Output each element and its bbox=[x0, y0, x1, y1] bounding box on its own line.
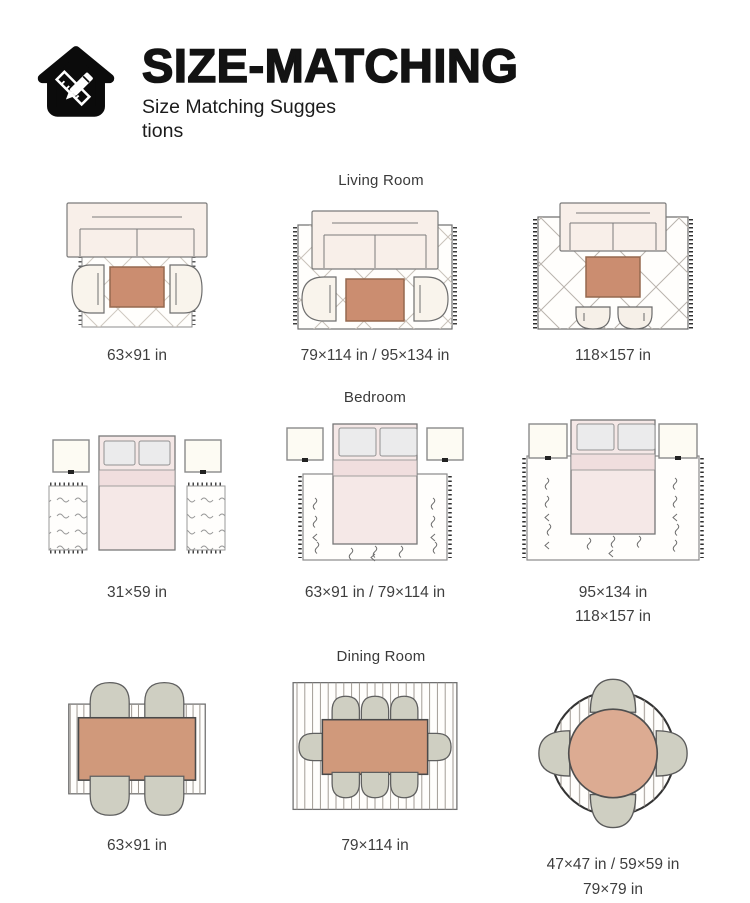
size-label-line1: 63×91 in / 79×114 in bbox=[305, 584, 445, 601]
bedroom-large-illustration bbox=[510, 412, 716, 572]
size-label: 47×47 in / 59×59 in 79×79 in bbox=[547, 853, 680, 903]
page-subtitle: Size Matching Sugges tions bbox=[142, 95, 472, 144]
size-label-line1: 79×114 in bbox=[341, 837, 408, 854]
size-label: 31×59 in bbox=[107, 581, 167, 606]
size-label-line1: 63×91 in bbox=[107, 837, 167, 854]
house-pencil-ruler-icon bbox=[34, 42, 118, 120]
subtitle-line1: Size Matching Sugges bbox=[142, 96, 336, 118]
bedroom-runners-figure: 31×59 in bbox=[26, 412, 248, 631]
living-room-small-illustration bbox=[39, 195, 235, 335]
size-label: 63×91 in / 79×114 in bbox=[305, 581, 445, 606]
living-room-row: 63×91 in bbox=[0, 195, 750, 369]
dining-round-illustration bbox=[510, 669, 716, 844]
dining-round-figure: 47×47 in / 59×59 in 79×79 in bbox=[502, 669, 724, 903]
dining-4-seats-illustration bbox=[34, 669, 240, 825]
section-title-dining-room: Dining Room bbox=[12, 648, 750, 665]
header: SIZE-MATCHING Size Matching Sugges tions bbox=[0, 0, 750, 144]
dining-room-row: 63×91 in bbox=[0, 669, 750, 903]
size-label: 118×157 in bbox=[575, 344, 651, 369]
size-label: 79×114 in bbox=[341, 834, 408, 859]
size-label: 63×91 in bbox=[107, 834, 167, 859]
living-room-large-illustration bbox=[515, 195, 711, 335]
bedroom-medium-figure: 63×91 in / 79×114 in bbox=[264, 412, 486, 631]
size-label-line1: 79×114 in / 95×134 in bbox=[301, 347, 450, 364]
size-label-line1: 118×157 in bbox=[575, 347, 651, 364]
size-label-line1: 47×47 in / 59×59 in bbox=[547, 856, 680, 873]
size-label-line1: 63×91 in bbox=[107, 347, 167, 364]
bedroom-large-figure: 95×134 in 118×157 in bbox=[502, 412, 724, 631]
size-label: 79×114 in / 95×134 in bbox=[301, 344, 450, 369]
infographic-page: SIZE-MATCHING Size Matching Sugges tions… bbox=[0, 0, 750, 873]
bedroom-runners-illustration bbox=[34, 412, 240, 572]
title-block: SIZE-MATCHING Size Matching Sugges tions bbox=[142, 42, 518, 144]
living-room-large-figure: 118×157 in bbox=[502, 195, 724, 369]
size-label-line2: 118×157 in bbox=[575, 605, 651, 630]
subtitle-line2: tions bbox=[142, 120, 183, 142]
size-label-line1: 95×134 in bbox=[579, 584, 648, 601]
section-title-bedroom: Bedroom bbox=[0, 389, 750, 406]
living-room-medium-illustration bbox=[277, 195, 473, 335]
section-title-living-room: Living Room bbox=[12, 172, 750, 189]
living-room-small-figure: 63×91 in bbox=[26, 195, 248, 369]
size-label-line1: 31×59 in bbox=[107, 584, 167, 601]
dining-8-seats-illustration bbox=[272, 669, 478, 825]
size-label-line2: 79×79 in bbox=[547, 878, 680, 903]
bedroom-row: 31×59 in bbox=[0, 412, 750, 631]
size-label: 95×134 in 118×157 in bbox=[575, 581, 651, 631]
bedroom-medium-illustration bbox=[272, 412, 478, 572]
living-room-medium-figure: 79×114 in / 95×134 in bbox=[264, 195, 486, 369]
dining-4-seats-figure: 63×91 in bbox=[26, 669, 248, 903]
dining-8-seats-figure: 79×114 in bbox=[264, 669, 486, 903]
size-label: 63×91 in bbox=[107, 344, 167, 369]
page-title: SIZE-MATCHING bbox=[142, 42, 518, 89]
